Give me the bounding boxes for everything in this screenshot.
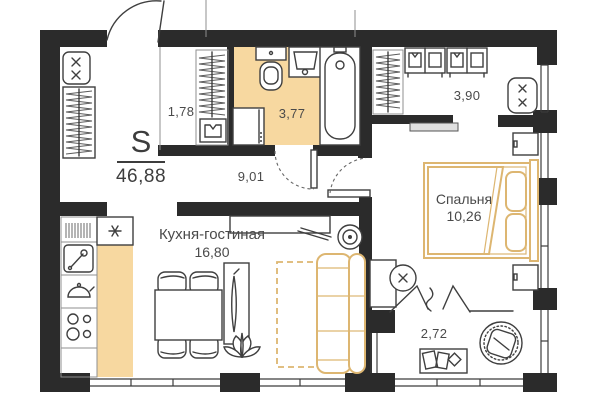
dining-table (155, 290, 222, 340)
kitchen-zone (97, 245, 133, 377)
wall-segment (372, 115, 453, 124)
nightstand (513, 265, 538, 290)
entry-door (107, 1, 164, 42)
plant (224, 333, 260, 357)
dish-rack (66, 223, 90, 238)
kitchen-sink (64, 245, 93, 272)
papasan-chair (480, 322, 522, 364)
floor-plan: S 46,88 1,78 3,77 9,01 3,90 2,72 Кухня-г… (0, 0, 605, 403)
divider (117, 161, 165, 163)
wall-segment (220, 373, 260, 392)
rug-dashed (277, 262, 318, 367)
room-area-dressing: 3,90 (444, 88, 490, 103)
kettle (68, 284, 94, 298)
dining-chair (190, 336, 218, 358)
bathtub (320, 47, 360, 145)
wall-segment (370, 310, 395, 333)
nightstand (513, 133, 538, 155)
desk (370, 260, 396, 307)
wall-segment (40, 30, 107, 47)
dining-chair (190, 272, 218, 294)
wall-segment (535, 178, 557, 205)
kitchen-counter (61, 217, 97, 377)
wall-segment (345, 373, 395, 392)
room-area-closet: 1,78 (158, 104, 204, 119)
entry-wardrobe-hangers (63, 87, 95, 158)
wall-segment (533, 288, 557, 310)
curtain-zigzag (390, 286, 513, 312)
dressing-hangers (373, 50, 403, 114)
shirt-box (200, 119, 226, 142)
shelf-unit (447, 48, 487, 77)
sofa (317, 254, 365, 373)
dining-chair (158, 336, 186, 358)
wall-segment (498, 115, 537, 127)
bedroom-door (328, 158, 370, 197)
window (90, 333, 523, 386)
wall-segment (537, 30, 557, 65)
ottoman (508, 78, 537, 113)
tv-stand (224, 263, 249, 344)
bathroom-door (275, 150, 317, 189)
wall-segment (40, 373, 90, 392)
wall-segment (177, 202, 363, 216)
shelf-unit (405, 48, 445, 77)
wall-segment (523, 373, 557, 392)
dining-table-set (155, 272, 222, 358)
wall-segment (358, 47, 372, 158)
fridge (97, 217, 133, 245)
snowflake-icon (109, 226, 121, 236)
wall-segment (227, 47, 234, 145)
wall-segment (359, 197, 372, 373)
sliding-door (410, 123, 458, 131)
room-label-kitchen-living: Кухня-гостиная 16,80 (133, 226, 291, 260)
wall-segment (53, 202, 107, 216)
room-area: 10,26 (424, 208, 504, 224)
room-area-balcony: 2,72 (411, 326, 457, 341)
total-area-block: S 46,88 (106, 126, 176, 188)
balcony-rug (420, 349, 467, 373)
bathroom-wet-zone (233, 47, 321, 145)
room-area-hallway: 9,01 (228, 169, 274, 184)
dining-chair (158, 272, 186, 294)
wall-segment (158, 30, 557, 47)
pillow (506, 214, 526, 251)
room-label-bedroom: Спальня 10,26 (424, 191, 504, 224)
total-area-symbol: S (106, 126, 176, 158)
room-area-bathroom: 3,77 (269, 106, 315, 121)
room-name: Спальня (424, 191, 504, 207)
room-name: Кухня-гостиная (133, 226, 291, 243)
room-area: 16,80 (133, 244, 291, 260)
shoe-cabinet (63, 52, 90, 84)
total-area-value: 46,88 (106, 166, 176, 188)
pillow (506, 172, 526, 211)
wall-segment (313, 145, 363, 156)
desk-chair (390, 265, 416, 291)
closet-hangers (196, 50, 228, 145)
stove-burners (67, 314, 91, 340)
